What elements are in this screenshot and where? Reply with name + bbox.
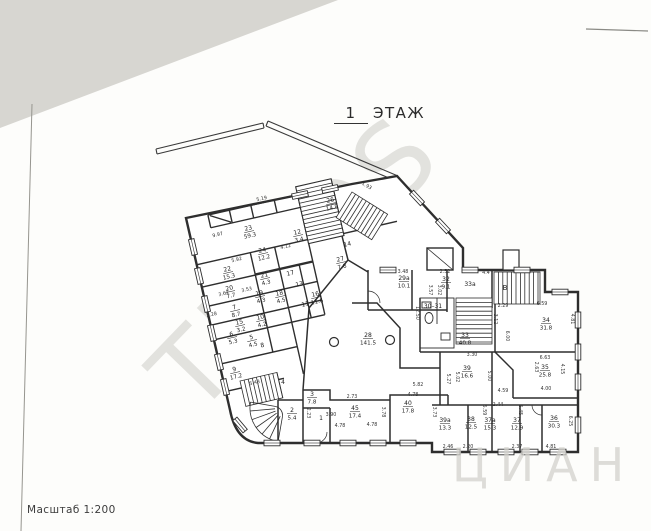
dimension-text: 4.78	[408, 392, 419, 398]
window-hatch	[380, 267, 396, 273]
svg-text:31.8: 31.8	[540, 326, 553, 332]
svg-text:33а: 33а	[464, 281, 476, 288]
floorplan-drawing: TELOS	[0, 0, 651, 531]
dimension-text: 6.00	[504, 331, 510, 342]
window-hatch	[575, 374, 581, 390]
svg-text:38: 38	[467, 416, 475, 423]
floor-number: 1	[334, 104, 368, 124]
svg-text:9.1: 9.1	[442, 285, 451, 291]
dimension-text: 2.29	[498, 303, 509, 309]
svg-text:37а: 37а	[484, 417, 496, 424]
scale-label: Масштаб 1:200	[27, 504, 116, 516]
svg-text:39а: 39а	[439, 417, 451, 424]
window-hatch	[514, 267, 530, 273]
window-hatch	[264, 440, 280, 446]
window-hatch	[552, 289, 568, 295]
dimension-text: 2.23	[305, 408, 311, 419]
watermark-cian: ЦИАН	[452, 438, 636, 492]
dimension-text: 3.78	[380, 407, 386, 418]
window-hatch	[575, 312, 581, 328]
svg-text:141.5: 141.5	[360, 341, 376, 347]
svg-text:1: 1	[319, 415, 323, 422]
svg-text:12.5: 12.5	[465, 425, 478, 431]
dimension-text: 4.81	[569, 314, 575, 325]
dimension-text: 4.78	[335, 423, 346, 429]
svg-text:2: 2	[290, 407, 294, 414]
svg-text:37: 37	[513, 417, 521, 424]
svg-text:16.6: 16.6	[461, 374, 474, 380]
dimension-text: 12.50	[414, 306, 420, 320]
svg-text:12.9: 12.9	[511, 426, 524, 432]
dimension-text: 4.00	[541, 386, 552, 392]
svg-text:45: 45	[351, 405, 359, 412]
svg-text:36: 36	[550, 415, 558, 422]
dimension-text: 6.63	[540, 355, 551, 361]
room-label: 30–31	[424, 303, 442, 310]
svg-text:33: 33	[461, 332, 469, 339]
dimension-text: 2.73	[347, 394, 358, 400]
dimension-text: 3.30	[467, 352, 478, 358]
svg-text:28: 28	[364, 332, 372, 339]
scanned-floorplan-page: TELOS	[0, 0, 651, 531]
svg-text:39: 39	[463, 365, 471, 372]
window-hatch	[575, 417, 581, 433]
svg-text:29а: 29а	[398, 275, 410, 282]
window-hatch	[575, 344, 581, 360]
dimension-text: 4.4	[482, 270, 490, 276]
room-label: 33а	[464, 281, 476, 288]
svg-text:25.8: 25.8	[539, 373, 552, 379]
svg-text:3: 3	[310, 391, 314, 398]
room-label: 4	[281, 379, 285, 386]
dimension-text: 5.00	[486, 371, 492, 382]
window-hatch	[462, 267, 478, 273]
dimension-text: 3.73	[431, 407, 437, 418]
dimension-text: 2.63	[533, 362, 539, 373]
dimension-text: 6.25	[567, 416, 573, 427]
dimension-text: 2.44	[493, 402, 504, 408]
svg-text:35: 35	[541, 364, 549, 371]
drawing-title: 1ЭТАЖ	[334, 104, 425, 124]
svg-text:17.8: 17.8	[402, 409, 415, 415]
dimension-text: 3.48	[398, 269, 409, 275]
dimension-text: 5.02	[454, 372, 460, 383]
dimension-text: 3.90	[326, 412, 337, 418]
svg-text:17.4: 17.4	[349, 414, 362, 420]
window-hatch	[400, 440, 416, 446]
window-hatch	[304, 440, 320, 446]
dimension-text: 3.57	[427, 285, 433, 296]
floor-word: ЭТАЖ	[373, 104, 425, 122]
dimension-text: 4.59	[498, 388, 509, 394]
svg-text:7.8: 7.8	[308, 400, 317, 406]
stair-letter-label: В	[503, 284, 508, 292]
svg-text:32: 32	[442, 276, 450, 283]
dimension-text: 6.59	[537, 301, 548, 307]
svg-text:5.4: 5.4	[288, 416, 297, 422]
dimension-text: 5.82	[413, 382, 424, 388]
dimension-text: 3.12	[492, 314, 498, 325]
svg-text:34: 34	[542, 317, 550, 324]
svg-text:40: 40	[404, 400, 412, 407]
svg-text:15.3: 15.3	[484, 426, 497, 432]
dimension-text: 4.15	[559, 364, 565, 375]
window-hatch	[340, 440, 356, 446]
dimension-text: 2.52	[440, 269, 451, 275]
svg-text:4: 4	[281, 379, 285, 386]
svg-text:10.1: 10.1	[398, 284, 411, 290]
room-label: 1	[319, 415, 323, 422]
dimension-text: 4.78	[367, 422, 378, 428]
svg-text:30.3: 30.3	[548, 424, 561, 430]
svg-text:30–31: 30–31	[424, 303, 442, 310]
dimension-text: 5.59	[481, 405, 487, 416]
dimension-text: 3.02	[436, 285, 442, 296]
svg-text:40.8: 40.8	[459, 341, 472, 347]
dimension-text: 5.45	[517, 405, 523, 416]
window-hatch	[370, 440, 386, 446]
dimension-text: 5.27	[445, 374, 451, 385]
svg-text:13.3: 13.3	[439, 426, 452, 432]
